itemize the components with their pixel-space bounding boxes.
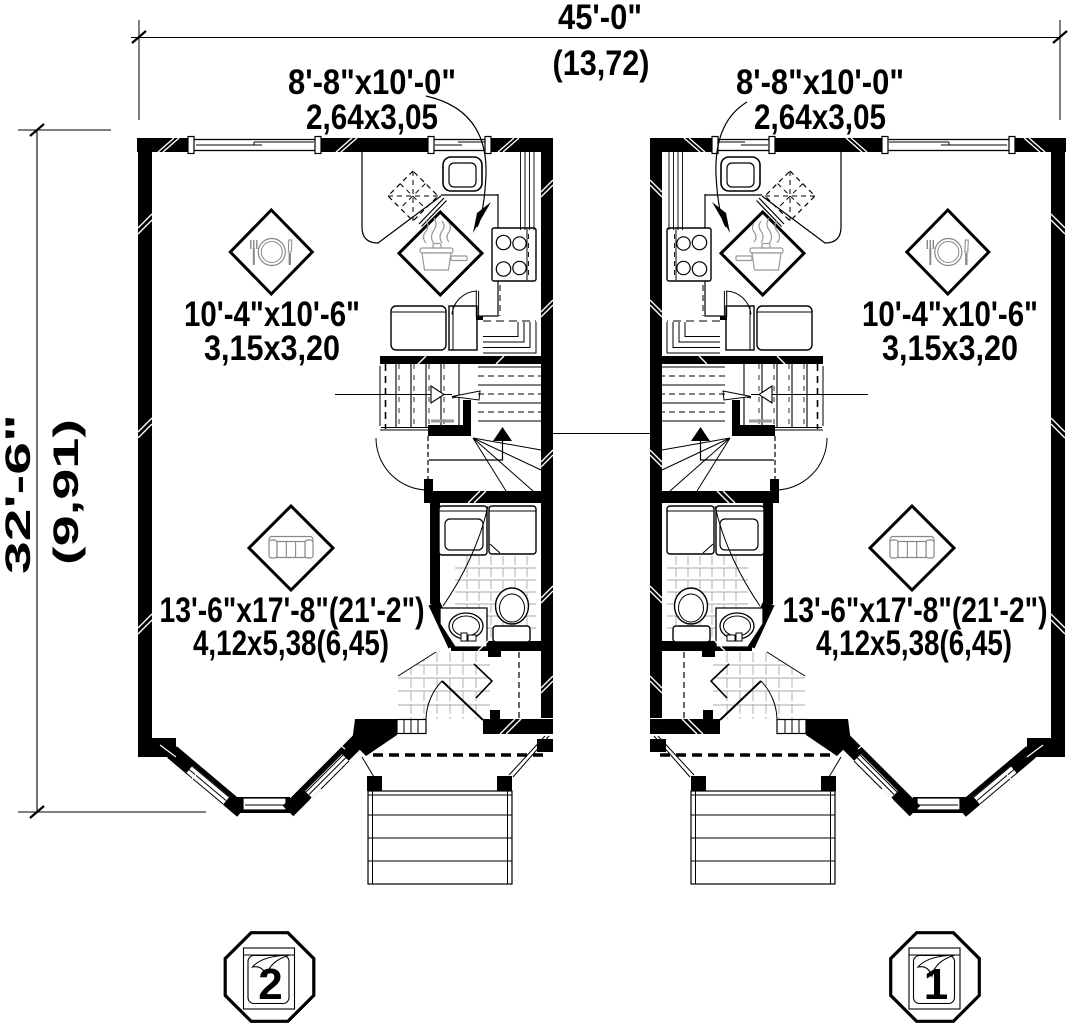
svg-text:8'-8"x10'-0": 8'-8"x10'-0" <box>288 63 456 102</box>
svg-text:(13,72): (13,72) <box>553 44 650 83</box>
svg-text:2,64x3,05: 2,64x3,05 <box>306 98 438 137</box>
svg-text:3,15x3,20: 3,15x3,20 <box>204 329 340 368</box>
svg-text:(9,91): (9,91) <box>47 419 86 565</box>
svg-text:2: 2 <box>258 960 282 1009</box>
svg-text:4,12x5,38(6,45): 4,12x5,38(6,45) <box>816 624 1012 663</box>
svg-text:1: 1 <box>924 960 948 1009</box>
svg-text:3,15x3,20: 3,15x3,20 <box>882 329 1018 368</box>
svg-text:2,64x3,05: 2,64x3,05 <box>754 98 886 137</box>
svg-text:4,12x5,38(6,45): 4,12x5,38(6,45) <box>193 624 389 663</box>
svg-text:32'-6": 32'-6" <box>0 414 38 574</box>
svg-text:8'-8"x10'-0": 8'-8"x10'-0" <box>736 63 904 102</box>
svg-text:45'-0": 45'-0" <box>558 0 642 37</box>
